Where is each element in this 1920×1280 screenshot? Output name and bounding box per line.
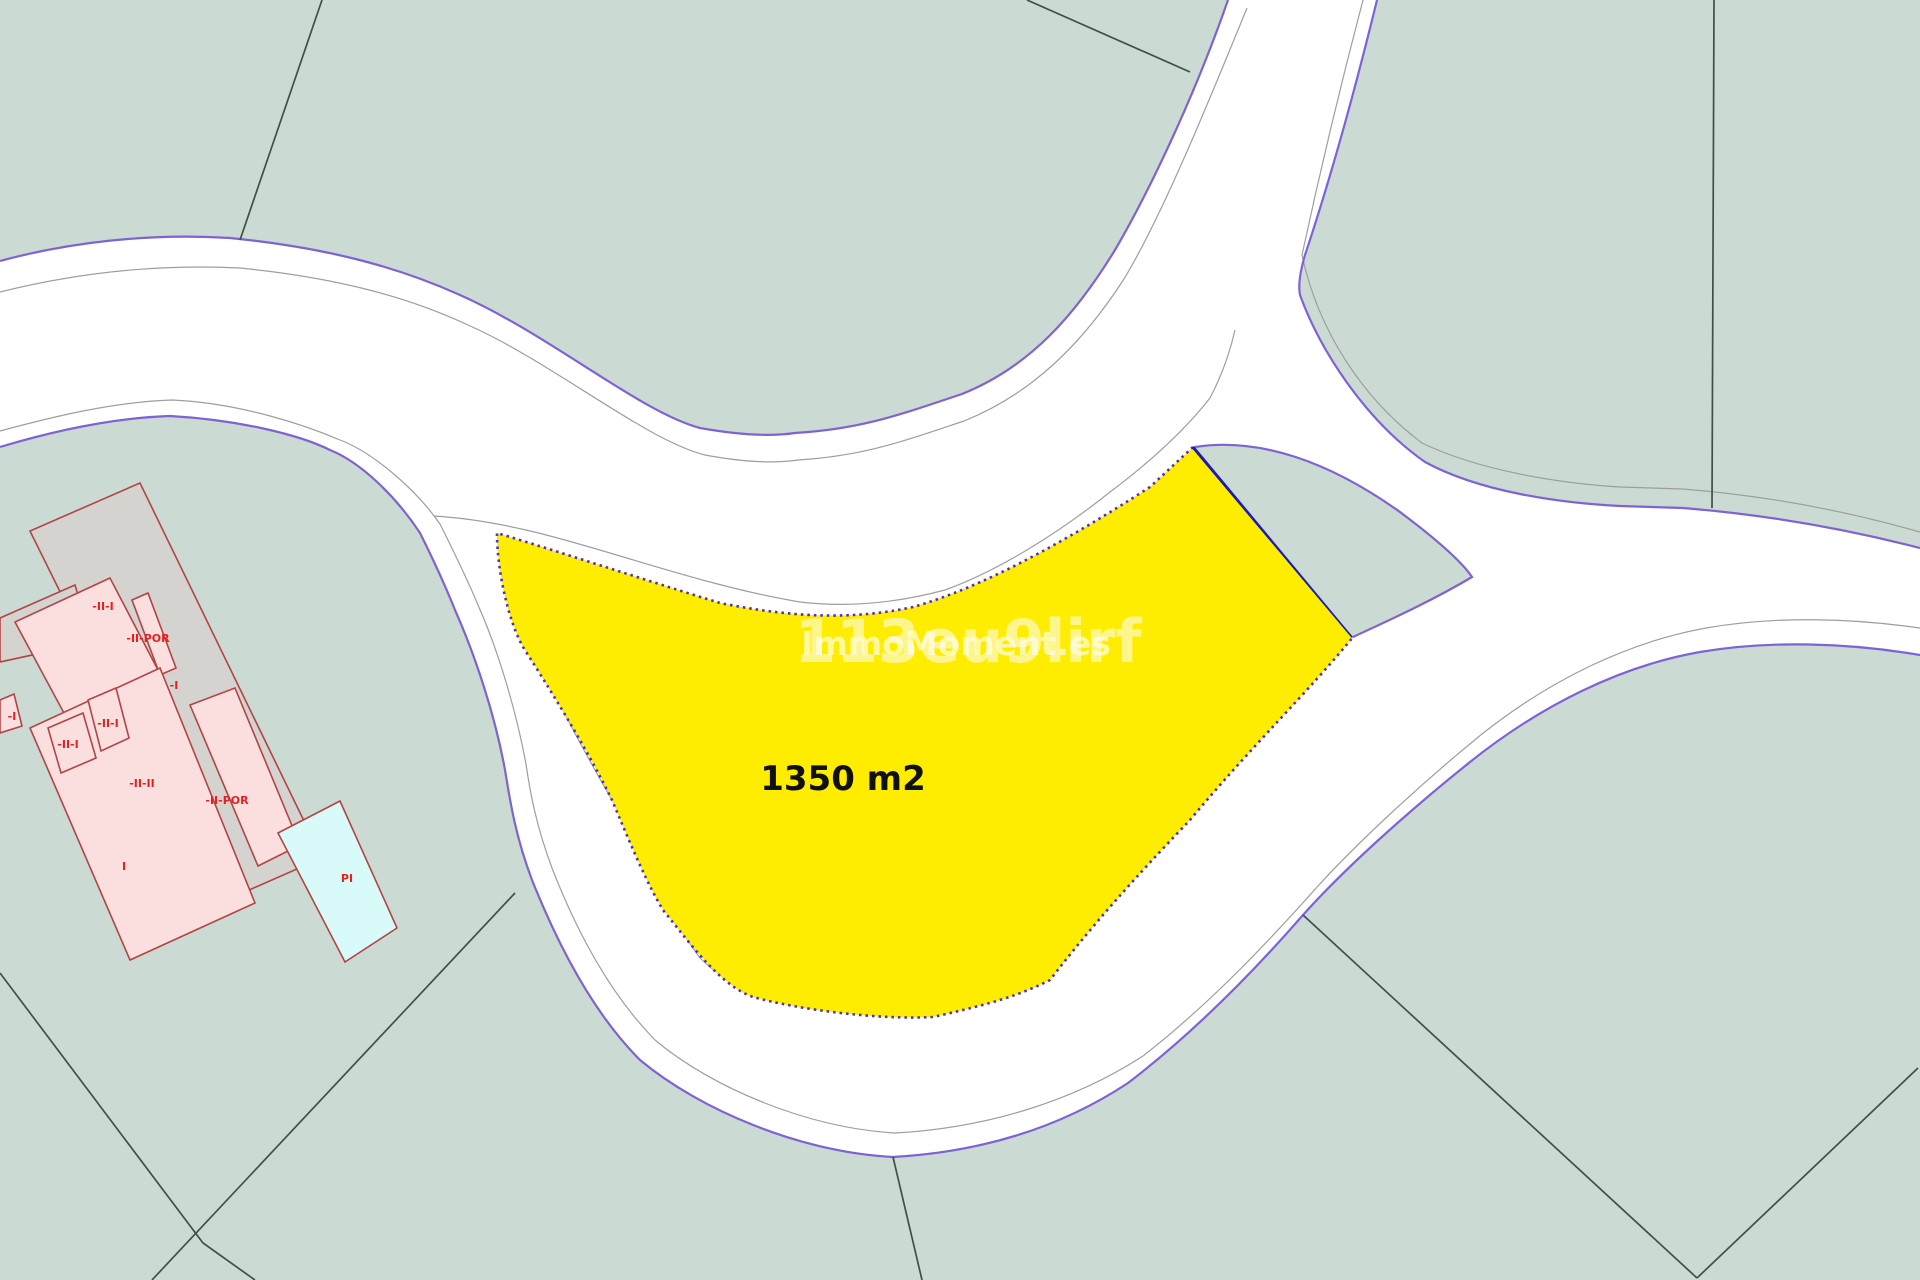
pool-label: PI bbox=[341, 872, 353, 885]
map-canvas: -II-I -II-POR -I -I -II-I -II-I -II-II -… bbox=[0, 0, 1920, 1280]
building-label: -II-II bbox=[129, 777, 155, 790]
building-label: -II-POR bbox=[205, 794, 249, 807]
building-label: -I bbox=[170, 679, 179, 692]
building-label: -II-I bbox=[92, 600, 113, 613]
watermark-brand: ImmoMoment.es bbox=[801, 624, 1111, 663]
building-label: -II-I bbox=[57, 738, 78, 751]
plot-area-label: 1350 m2 bbox=[760, 759, 926, 799]
building-label: -II-I bbox=[97, 717, 118, 730]
building-label: -I bbox=[8, 710, 17, 723]
building-label: I bbox=[122, 860, 126, 873]
building-label: -II-POR bbox=[126, 632, 170, 645]
cadastral-map: -II-I -II-POR -I -I -II-I -II-I -II-II -… bbox=[0, 0, 1920, 1280]
